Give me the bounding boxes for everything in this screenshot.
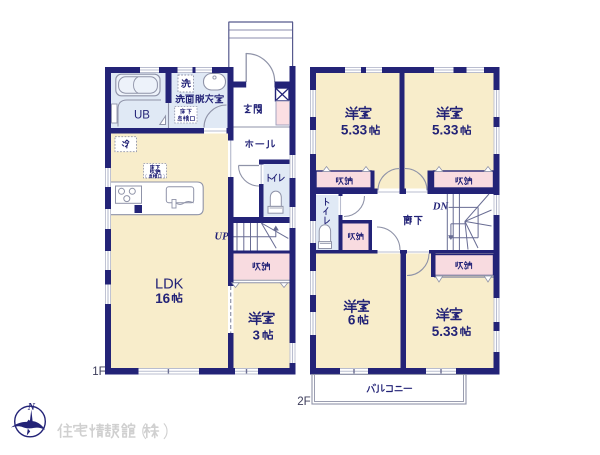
svg-text:UB: UB bbox=[134, 110, 150, 122]
svg-text:16: 16 bbox=[155, 291, 170, 306]
svg-text:2F: 2F bbox=[297, 396, 310, 408]
svg-text:UP: UP bbox=[215, 232, 230, 243]
svg-text:DN: DN bbox=[432, 202, 449, 213]
svg-text:1F: 1F bbox=[92, 366, 105, 378]
svg-text:6: 6 bbox=[348, 312, 356, 327]
svg-text:5.33: 5.33 bbox=[432, 123, 459, 138]
svg-text:5.33: 5.33 bbox=[341, 123, 368, 138]
svg-text:5.33: 5.33 bbox=[432, 324, 459, 339]
svg-text:3: 3 bbox=[253, 328, 260, 343]
svg-text:N: N bbox=[27, 402, 36, 413]
